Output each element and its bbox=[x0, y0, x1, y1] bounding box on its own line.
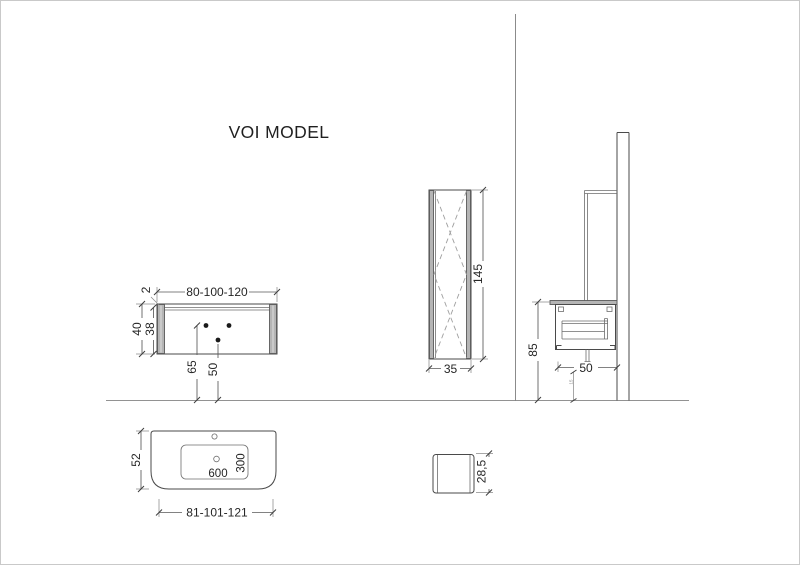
drawer-profile bbox=[562, 319, 608, 340]
vanity-body bbox=[157, 304, 277, 354]
worktop-side bbox=[550, 301, 617, 305]
dim-worktop-height: 85 bbox=[526, 343, 540, 357]
dim-depth: 50 bbox=[579, 361, 593, 375]
dim-plan-depth: 52 bbox=[129, 453, 143, 467]
dim-drain-height: 50 bbox=[206, 363, 220, 377]
dim-body-height: 38 bbox=[143, 322, 157, 336]
room-reference-lines bbox=[106, 14, 689, 401]
drain-hole bbox=[216, 338, 221, 343]
drain-opening bbox=[214, 456, 220, 462]
dim-tall-height: 145 bbox=[471, 264, 485, 284]
cabinet-side-body bbox=[556, 305, 616, 350]
dim-bowl-depth: 300 bbox=[236, 453, 248, 472]
dim-tall-depth: 35 bbox=[444, 362, 458, 376]
vanity-side-view: 85 50 15 bbox=[526, 133, 629, 404]
wall-panel bbox=[617, 133, 629, 401]
dim-supply-height: 65 bbox=[185, 360, 199, 374]
dim-width-options: 80-100-120 bbox=[186, 285, 248, 299]
dim-basin-height: 28,5 bbox=[475, 459, 489, 483]
hanging-bracket-left bbox=[559, 307, 564, 312]
vanity-worktop-lines bbox=[157, 308, 277, 311]
dim-plan-width-options: 81-101-121 bbox=[186, 506, 248, 520]
tall-cabinet-left-edge bbox=[430, 191, 434, 359]
page-title: VOI MODEL bbox=[229, 122, 330, 142]
washbasin-plan-view: 600 300 52 81-101-121 bbox=[129, 428, 276, 520]
bottom-fittings bbox=[557, 346, 616, 350]
drawing-canvas: VOI MODEL 80-100-120 2 40 38 65 bbox=[1, 1, 800, 565]
tall-cabinet-right-edge bbox=[467, 191, 471, 359]
supply-hole-right bbox=[227, 323, 232, 328]
dim-bowl-width: 600 bbox=[208, 468, 227, 480]
basin-side-outline bbox=[433, 455, 474, 494]
hole-height-dim-lines bbox=[197, 326, 218, 401]
basin-side-walls bbox=[438, 455, 471, 493]
column-side-profile bbox=[585, 191, 618, 302]
dim-top-thickness: 2 bbox=[139, 286, 153, 293]
faucet-hole bbox=[212, 434, 217, 439]
supply-hole-left bbox=[204, 323, 209, 328]
vanity-front-view: 80-100-120 2 40 38 65 50 bbox=[130, 285, 280, 403]
dim-drain-offset: 15 bbox=[569, 379, 574, 385]
technical-drawing-page: VOI MODEL 80-100-120 2 40 38 65 bbox=[0, 0, 800, 565]
washbasin-side-view: 28,5 bbox=[433, 451, 493, 496]
tall-cabinet-view: 145 35 bbox=[426, 187, 488, 376]
dim-total-height: 40 bbox=[130, 322, 144, 336]
hanging-bracket-right bbox=[607, 307, 612, 312]
drain-pipe bbox=[585, 350, 591, 362]
door-swing-symbol bbox=[434, 191, 467, 358]
